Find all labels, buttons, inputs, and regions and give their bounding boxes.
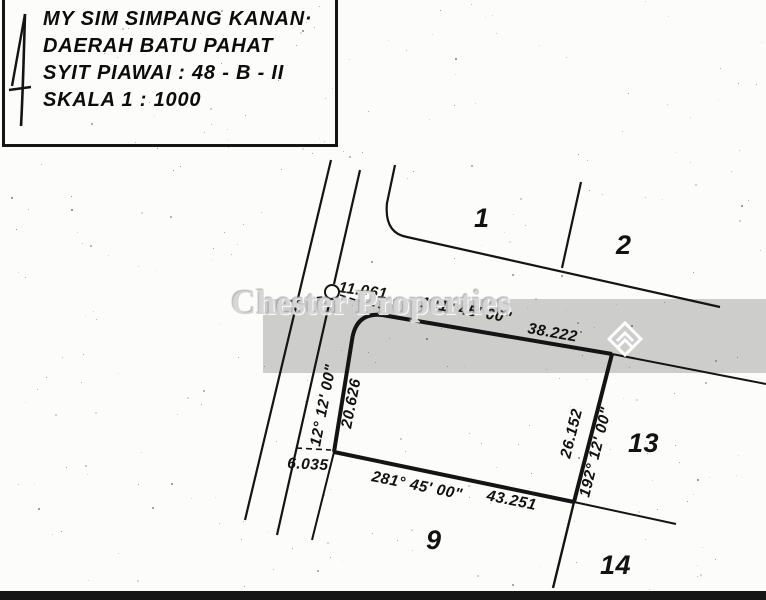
road-offset-label: 6.035 bbox=[287, 455, 329, 474]
plot-label-14: 14 bbox=[600, 550, 631, 580]
offset-dash-south bbox=[296, 448, 331, 450]
plot-label-2: 2 bbox=[615, 230, 632, 260]
title-block: MY SIM SIMPANG KANAN· DAERAH BATU PAHAT … bbox=[2, 0, 338, 147]
west-line-distance-label: 20.626 bbox=[338, 377, 364, 431]
lot9-lot14-divider-line bbox=[553, 502, 574, 588]
north-boundary-extension-line bbox=[612, 354, 766, 384]
scanned-survey-plan: 101° 45' 00" 38.222 12° 12' 00" 20.626 2… bbox=[0, 0, 766, 600]
chester-diamond-logo-icon bbox=[606, 320, 644, 358]
watermark-text: Chester Properties bbox=[231, 283, 511, 323]
title-mukim-line: MY SIM SIMPANG KANAN· bbox=[43, 6, 312, 33]
east-line-distance-label: 26.152 bbox=[557, 407, 586, 461]
title-scale-line: SKALA 1 : 1000 bbox=[43, 87, 312, 114]
title-district-line: DAERAH BATU PAHAT bbox=[43, 33, 312, 60]
road-east-edge-line-upper bbox=[334, 170, 360, 284]
plot-label-13: 13 bbox=[628, 428, 659, 458]
title-sheet-line: SYIT PIAWAI : 48 - B - II bbox=[43, 60, 312, 87]
lot13-lot14-divider-line bbox=[574, 502, 676, 524]
lot1-lot2-divider-line bbox=[562, 182, 581, 268]
plot-label-9: 9 bbox=[426, 525, 442, 555]
pen-mark bbox=[4, 6, 40, 136]
south-line-bearing-label: 281° 45' 00" bbox=[369, 468, 464, 503]
scan-bottom-border bbox=[0, 591, 766, 600]
plot-label-1: 1 bbox=[474, 203, 490, 233]
